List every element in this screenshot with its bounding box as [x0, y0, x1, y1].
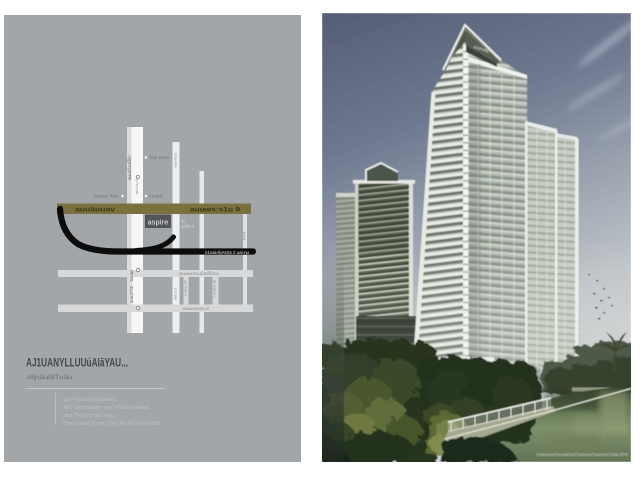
svg-text:auusča1ȭčn: auusča1ȭčn — [126, 155, 132, 180]
svg-text:auu1u1: auu1u1 — [174, 287, 178, 300]
svg-text:487 anıčuasnv ıvn n?ud?uunıud: 487 anıčuasnv ıvn n?ud?uunıud — [63, 405, 149, 411]
svg-text:auuwvsučäȭčnu: auuwvsučäȭčnu — [179, 271, 220, 276]
svg-text:Open daily 9 am-7pm Tel 02 000: Open daily 9 am-7pm Tel 02 000 0000 — [63, 421, 160, 427]
svg-text:aspire: aspire — [148, 218, 169, 227]
svg-text:üIýıäuläTuäu: üIýıäuläTuäu — [27, 374, 73, 381]
svg-text:auuws:s1u 9: auuws:s1u 9 — [190, 207, 241, 214]
svg-text:v asna 35: v asna 35 — [184, 280, 188, 296]
svg-text:auuäuuav: auuäuuav — [75, 207, 116, 214]
svg-text:auuaTAn - äuuav: auuaTAn - äuuav — [129, 269, 134, 303]
svg-text:AJ1UANYLLUUúAIāYAU...: AJ1UANYLLUUúAIāYAU... — [26, 358, 128, 370]
svg-text:Fortune Town: Fortune Town — [94, 194, 120, 199]
svg-text:ws:s1u 9: ws:s1u 9 — [135, 179, 139, 194]
svg-text:n1vwiAbAsSv 2 uai·nu: n1vwiAbAsSv 2 uai·nu — [205, 250, 250, 255]
svg-text:v wsača 38: v wsača 38 — [213, 280, 217, 298]
svg-text:RCA: RCA — [243, 232, 247, 240]
svg-text:vau nä1v: vau nä1v — [174, 152, 178, 168]
svg-text:du?nvnu?iaviaoiu.: du?nvnu?iaviaoiu. — [63, 397, 118, 403]
svg-text:duu?nv?nuiä?au.: duu?nv?nuiä?au. — [63, 413, 116, 419]
svg-text:n?wuasus?nnuaämod?raıäuws?aıaä: n?wuasus?nnuaämod?raıäuws?aıaäums?uıäa 8… — [536, 452, 628, 457]
svg-text:Tu: Tu — [181, 220, 185, 224]
svg-text:Central: Central — [149, 194, 163, 199]
svg-text:Thai Tower: Thai Tower — [149, 155, 170, 160]
svg-text:au1ču 9: au1ču 9 — [181, 225, 194, 229]
svg-text:auuwvsuč: auuwvsuč — [183, 306, 211, 311]
